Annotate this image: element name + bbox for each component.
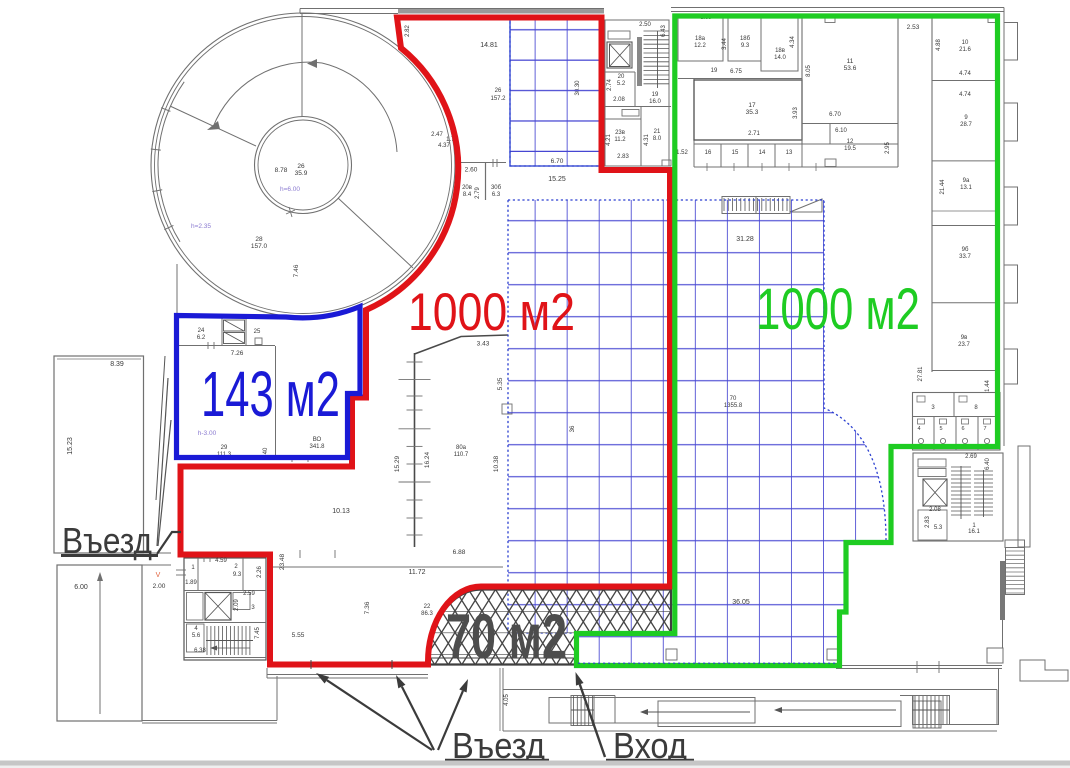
svg-text:9.3: 9.3 [233, 572, 242, 578]
svg-text:7.45: 7.45 [255, 627, 261, 639]
svg-text:1.89: 1.89 [185, 580, 197, 586]
svg-text:19.5: 19.5 [844, 146, 856, 152]
svg-text:4.05: 4.05 [504, 694, 510, 706]
svg-text:30б: 30б [491, 185, 502, 191]
svg-text:6.2: 6.2 [197, 335, 206, 341]
svg-text:16.24: 16.24 [424, 451, 431, 468]
svg-text:1.44: 1.44 [985, 380, 991, 392]
svg-text:14: 14 [759, 150, 766, 156]
svg-text:4: 4 [917, 426, 920, 432]
svg-text:7.46: 7.46 [293, 264, 300, 277]
svg-text:4.74: 4.74 [959, 71, 971, 77]
svg-text:4.37: 4.37 [438, 143, 450, 149]
svg-text:7.26: 7.26 [231, 350, 244, 357]
svg-text:6: 6 [961, 426, 964, 432]
svg-text:24: 24 [198, 328, 205, 334]
svg-text:4.88: 4.88 [936, 39, 942, 51]
svg-text:33.7: 33.7 [959, 254, 971, 260]
svg-text:2.53: 2.53 [907, 24, 920, 31]
svg-text:5.35: 5.35 [497, 377, 504, 390]
svg-text:22: 22 [424, 604, 431, 610]
svg-text:26: 26 [495, 88, 502, 94]
svg-text:110.7: 110.7 [454, 452, 469, 458]
svg-text:16: 16 [705, 150, 712, 156]
svg-text:5.3: 5.3 [934, 525, 943, 531]
svg-text:7.36: 7.36 [364, 601, 371, 614]
svg-text:18в: 18в [775, 48, 785, 54]
svg-text:10: 10 [962, 40, 969, 46]
svg-text:8.0: 8.0 [653, 136, 662, 142]
svg-text:29: 29 [221, 445, 228, 451]
svg-text:40: 40 [263, 447, 269, 454]
svg-text:157.0: 157.0 [251, 243, 268, 250]
svg-text:16.0: 16.0 [649, 99, 661, 105]
svg-text:8.78: 8.78 [275, 167, 288, 174]
svg-text:11.72: 11.72 [409, 569, 426, 576]
svg-text:4.31: 4.31 [644, 134, 650, 146]
svg-text:6.10: 6.10 [835, 128, 847, 134]
svg-text:3.93: 3.93 [793, 107, 799, 119]
svg-text:18б: 18б [740, 36, 751, 42]
svg-text:2.83: 2.83 [617, 154, 629, 160]
svg-text:h=2.35: h=2.35 [191, 223, 211, 230]
svg-text:18a: 18a [695, 36, 706, 42]
svg-text:15.25: 15.25 [548, 176, 566, 183]
svg-text:2.08: 2.08 [613, 97, 625, 103]
svg-text:2.82: 2.82 [405, 25, 411, 37]
svg-text:14.81: 14.81 [480, 42, 498, 49]
svg-text:6.70: 6.70 [829, 112, 841, 118]
svg-text:157.2: 157.2 [490, 96, 506, 102]
svg-text:2.59: 2.59 [243, 591, 255, 597]
svg-text:5.2: 5.2 [617, 81, 626, 87]
svg-text:23.48: 23.48 [279, 553, 286, 570]
svg-text:h=6.00: h=6.00 [280, 186, 300, 193]
svg-text:21.44: 21.44 [940, 179, 946, 195]
svg-text:80a: 80a [456, 445, 467, 451]
svg-text:3.44: 3.44 [722, 38, 728, 50]
svg-text:ВО: ВО [313, 437, 322, 443]
svg-text:2.60: 2.60 [465, 167, 478, 174]
svg-text:2.95: 2.95 [885, 142, 891, 154]
svg-text:2.79: 2.79 [475, 187, 481, 199]
svg-text:14.0: 14.0 [774, 55, 786, 61]
svg-text:8.39: 8.39 [110, 361, 124, 368]
svg-text:6.38: 6.38 [194, 648, 206, 654]
svg-text:9a: 9a [963, 178, 970, 184]
svg-text:8.05: 8.05 [806, 65, 812, 77]
svg-text:6.75: 6.75 [730, 69, 742, 75]
svg-text:25: 25 [254, 329, 261, 335]
svg-text:10.38: 10.38 [493, 455, 500, 472]
svg-text:2.00: 2.00 [153, 583, 166, 590]
svg-text:28.7: 28.7 [960, 122, 972, 128]
svg-text:h-3.00: h-3.00 [198, 430, 217, 437]
svg-text:4.34: 4.34 [790, 36, 796, 48]
svg-text:6.88: 6.88 [453, 549, 466, 556]
svg-text:12: 12 [847, 139, 854, 145]
svg-text:4.21: 4.21 [606, 134, 612, 146]
svg-text:19: 19 [652, 92, 659, 98]
svg-text:7: 7 [983, 426, 986, 432]
svg-text:20: 20 [618, 74, 625, 80]
svg-text:21.6: 21.6 [959, 47, 971, 53]
svg-text:1000 м2: 1000 м2 [408, 283, 575, 342]
svg-text:2.47: 2.47 [431, 132, 443, 138]
svg-text:21: 21 [654, 129, 661, 135]
svg-text:70 м2: 70 м2 [446, 602, 567, 672]
svg-text:1000 м2: 1000 м2 [756, 277, 920, 342]
svg-text:2.50: 2.50 [639, 22, 651, 28]
svg-text:12.2: 12.2 [694, 43, 706, 49]
svg-text:27.81: 27.81 [918, 366, 924, 382]
svg-text:35.9: 35.9 [295, 170, 308, 177]
svg-text:2.09: 2.09 [234, 599, 240, 611]
svg-text:1.52: 1.52 [676, 150, 688, 156]
svg-text:341.8: 341.8 [309, 444, 325, 450]
svg-text:15.29: 15.29 [394, 455, 401, 472]
svg-text:2.74: 2.74 [607, 79, 613, 91]
svg-text:9в: 9в [961, 335, 968, 341]
svg-text:5: 5 [939, 426, 942, 432]
svg-text:11.2: 11.2 [614, 137, 626, 143]
svg-text:23в: 23в [615, 130, 625, 136]
svg-text:23.7: 23.7 [958, 342, 970, 348]
svg-text:2.08: 2.08 [929, 507, 941, 513]
svg-text:2.26: 2.26 [257, 566, 263, 578]
svg-text:143 м2: 143 м2 [201, 358, 340, 430]
svg-text:5.55: 5.55 [292, 632, 305, 639]
svg-text:26: 26 [297, 163, 305, 170]
svg-text:9б: 9б [962, 247, 969, 253]
svg-text:2.83: 2.83 [925, 516, 931, 528]
svg-text:20в: 20в [462, 185, 472, 191]
svg-text:4.74: 4.74 [959, 92, 971, 98]
svg-text:15.23: 15.23 [67, 437, 74, 455]
svg-text:53.6: 53.6 [844, 65, 857, 72]
svg-text:4.59: 4.59 [215, 558, 227, 564]
svg-text:6.3: 6.3 [492, 192, 501, 198]
svg-text:86.3: 86.3 [421, 611, 433, 617]
svg-text:19: 19 [711, 68, 718, 74]
svg-text:6.40: 6.40 [985, 458, 991, 470]
svg-text:6.00: 6.00 [74, 584, 88, 591]
svg-text:6.43: 6.43 [661, 25, 667, 37]
svg-text:10.13: 10.13 [332, 508, 350, 515]
svg-text:13: 13 [786, 150, 793, 156]
svg-text:35.3: 35.3 [746, 109, 759, 116]
svg-text:28: 28 [255, 236, 263, 243]
svg-text:2.71: 2.71 [748, 131, 760, 137]
svg-text:9.3: 9.3 [741, 43, 750, 49]
svg-text:2.69: 2.69 [965, 454, 977, 460]
svg-text:17: 17 [748, 102, 756, 109]
svg-text:V: V [156, 572, 161, 579]
svg-text:11: 11 [847, 58, 854, 65]
svg-text:16.1: 16.1 [968, 529, 980, 535]
svg-text:15: 15 [732, 150, 739, 156]
svg-text:13.1: 13.1 [960, 185, 972, 191]
svg-text:8.4: 8.4 [463, 192, 472, 198]
svg-text:5.6: 5.6 [192, 633, 201, 639]
